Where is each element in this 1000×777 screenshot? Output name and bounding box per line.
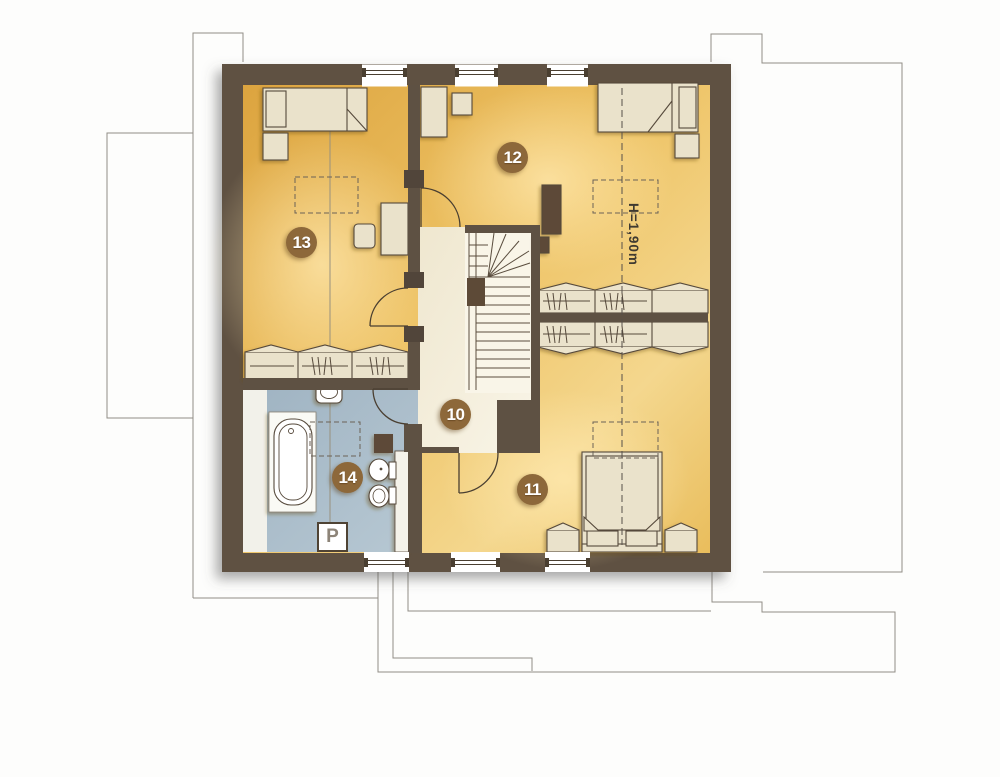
wall-bathroom-room11: [408, 450, 422, 553]
bathroom-cabinet: [374, 434, 393, 453]
door-jamb-room13-top: [404, 272, 424, 288]
cabinet-room12: [421, 87, 447, 137]
window-top-room12-right: [547, 65, 588, 87]
nightstand-room12-a: [452, 93, 472, 115]
floor-plan-page: 10 11 12 13 14 H=1,90m P: [0, 0, 1000, 777]
bidet: [369, 459, 389, 481]
toilet-tank: [389, 487, 396, 504]
wall-stair-closet: [497, 400, 535, 453]
toilet: [369, 485, 389, 507]
window-bottom-bathroom: [364, 552, 409, 572]
window-top-room12-left: [455, 65, 498, 87]
room-label-14: 14: [332, 462, 363, 493]
bathroom-roof-slope-strip: [243, 388, 267, 552]
window-bottom-room11-right: [545, 552, 590, 572]
wall-hall-bottom: [408, 447, 459, 453]
pillow-room11-right: [626, 531, 657, 546]
room-label-11: 11: [517, 474, 548, 505]
room-label-10: 10: [440, 399, 471, 430]
nightstand-room13: [263, 133, 288, 160]
knee-wall-height-note: H=1,90m: [626, 203, 641, 266]
room-label-12: 12: [497, 142, 528, 173]
pillow-room11-left: [587, 531, 618, 546]
door-jamb-room13-bottom: [404, 326, 424, 342]
wall-stair-top: [465, 225, 540, 233]
window-bottom-room11-left: [451, 552, 500, 572]
wall-12-11: [531, 313, 708, 322]
nightstand-room11-right: [665, 530, 697, 552]
floor-plan-drawing: [0, 0, 1000, 777]
washing-machine: P: [317, 522, 348, 552]
wall-bathroom-top: [243, 378, 420, 390]
door-jamb-room12: [404, 170, 424, 188]
nightstand-room12-b: [675, 134, 699, 158]
stairwell-floor: [465, 233, 531, 393]
dresser-room12: [542, 185, 561, 234]
pillow-room12: [679, 87, 696, 128]
bidet-tank: [389, 462, 396, 479]
window-top-room13: [362, 65, 407, 87]
chimney: [467, 278, 485, 306]
room-label-13: 13: [286, 227, 317, 258]
nightstand-room11-left: [547, 530, 579, 552]
bidet-drain: [380, 468, 383, 471]
desk-room13: [381, 203, 408, 255]
chair-room13: [354, 224, 375, 248]
plumbing-partition: [395, 451, 410, 552]
pillow-room13: [266, 91, 286, 127]
